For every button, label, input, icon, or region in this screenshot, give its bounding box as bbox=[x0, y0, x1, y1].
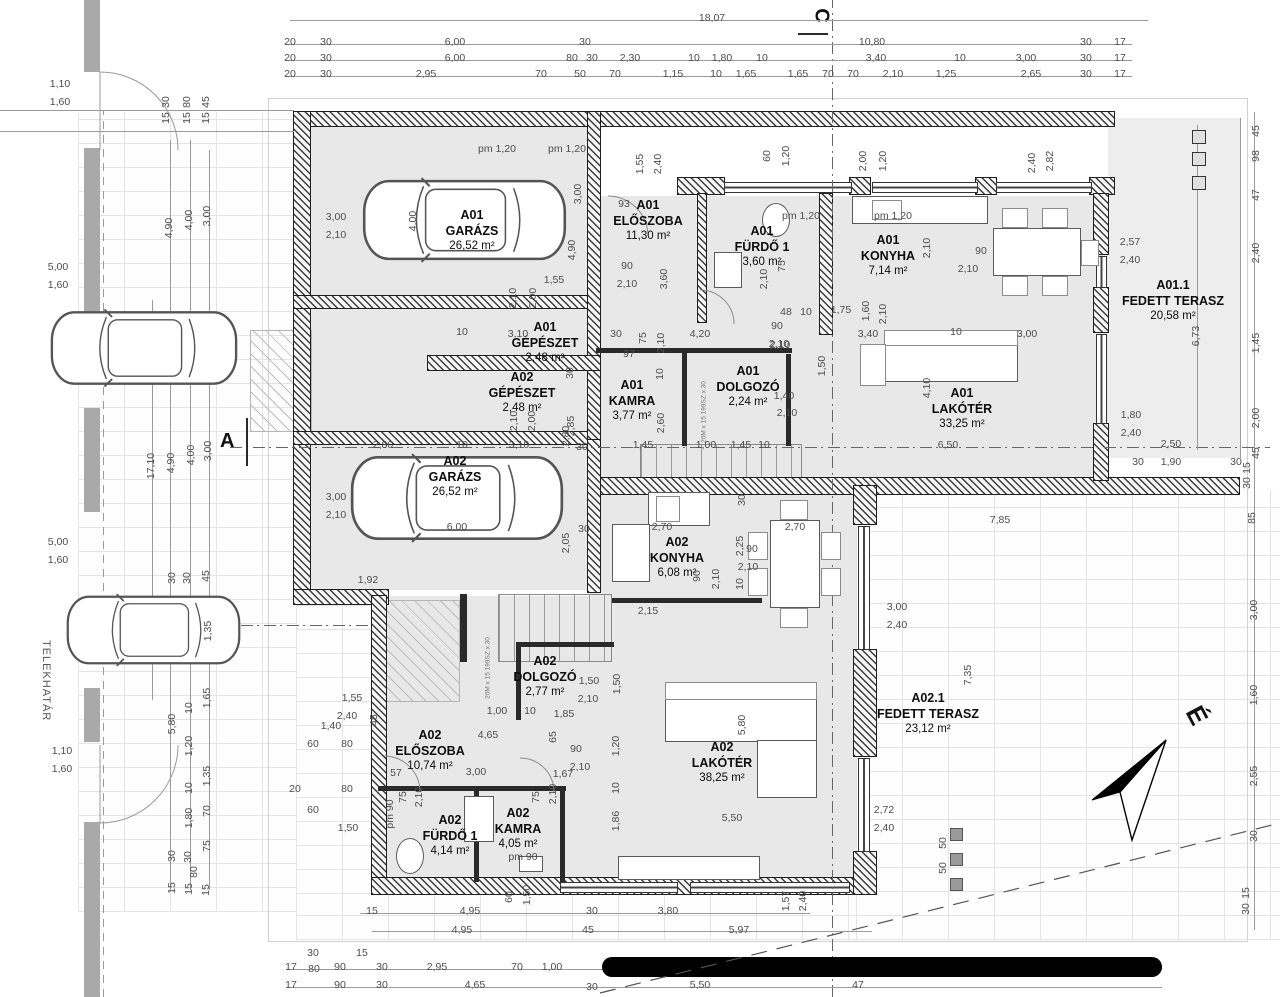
dim-label: 1,50 bbox=[611, 674, 623, 694]
room-area: 4,14 m² bbox=[423, 844, 478, 858]
room-area: 3,77 m² bbox=[609, 409, 656, 423]
dim-label: 5,00 bbox=[48, 261, 68, 273]
axis-line bbox=[80, 625, 380, 626]
dim-label: 1,50 bbox=[579, 675, 599, 687]
chair bbox=[1042, 208, 1068, 228]
dim-label: 2,40 bbox=[874, 822, 894, 834]
dim-label: 3,00 bbox=[1016, 52, 1036, 64]
dim-label: 1,15 bbox=[663, 68, 683, 80]
dim-label: 2,82 bbox=[1044, 151, 1056, 171]
dim-label: 1,10 bbox=[52, 745, 72, 757]
dim-label: 3,80 bbox=[658, 905, 678, 917]
dim-label: 2,10 bbox=[777, 407, 797, 419]
room-label-a02-gepeszet: A02 GÉPÉSZET 2,48 m² bbox=[489, 370, 556, 416]
boundary-wall bbox=[84, 148, 100, 312]
room-label-a021-terasz: A02.1 FEDETT TERASZ 23,12 m² bbox=[877, 691, 979, 737]
dim-label: 15 bbox=[181, 112, 193, 124]
dim-label: 4,00 bbox=[185, 445, 197, 465]
dim-label: 1,45 bbox=[633, 439, 653, 451]
dim-label: 45 bbox=[582, 924, 594, 936]
room-unit: A02 bbox=[692, 740, 752, 756]
dim-label: 1,45 bbox=[1250, 333, 1262, 353]
dim-label: 7,35 bbox=[962, 665, 974, 685]
dim-label: 80 bbox=[188, 866, 200, 878]
dim-label: 60 bbox=[307, 804, 319, 816]
dim-label: 10 bbox=[183, 702, 195, 714]
dim-label: 80 bbox=[341, 783, 353, 795]
dim-label: 30 bbox=[586, 981, 598, 993]
dim-label: 4,10 bbox=[921, 378, 933, 398]
dim-label: 2,95 bbox=[427, 961, 447, 973]
dim-label: 5,97 bbox=[729, 924, 749, 936]
dim-label: 6,00 bbox=[445, 52, 465, 64]
dim-label: 10 bbox=[524, 705, 536, 717]
paver bbox=[950, 828, 963, 841]
dim-label: 17 bbox=[1114, 52, 1126, 64]
room-name: ELŐSZOBA bbox=[395, 744, 464, 760]
dim-label: 4,95 bbox=[452, 924, 472, 936]
dim-label: 60 bbox=[307, 738, 319, 750]
wall bbox=[698, 194, 706, 322]
dim-label: 1,90 bbox=[1161, 456, 1181, 468]
dim-label: 4,00 bbox=[183, 210, 195, 230]
dim-label: 90 bbox=[771, 320, 783, 332]
wall bbox=[854, 486, 876, 524]
dim-label: 1,40 bbox=[774, 390, 794, 402]
dim-line bbox=[286, 76, 1132, 77]
room-label-a01-kamra: A01 KAMRA 3,77 m² bbox=[609, 378, 656, 424]
dim-label: 80 bbox=[566, 52, 578, 64]
window bbox=[996, 182, 1092, 193]
dim-label: 15 bbox=[1240, 887, 1252, 899]
dim-label: 1,92 bbox=[358, 574, 378, 586]
dining-table-a01 bbox=[993, 228, 1081, 276]
room-label-a01-gepeszet: A01 GÉPÉSZET 2,48 m² bbox=[512, 320, 579, 366]
dim-line bbox=[170, 140, 171, 890]
dim-label: 1,60 bbox=[48, 554, 68, 566]
post bbox=[1192, 130, 1206, 144]
dim-label: 1,40 bbox=[321, 720, 341, 732]
dim-label: 30 bbox=[320, 52, 332, 64]
dim-label: 10 bbox=[456, 439, 468, 451]
wall-pier bbox=[1090, 178, 1114, 194]
fence-line bbox=[0, 110, 294, 111]
ramp-a02 bbox=[386, 600, 460, 702]
dim-label: 2,10 bbox=[570, 761, 590, 773]
wall bbox=[588, 440, 600, 592]
dim-line bbox=[286, 987, 1162, 988]
dim-label: 15 bbox=[160, 112, 172, 124]
dim-label: 75 bbox=[530, 791, 542, 803]
room-name: FÜRDŐ 1 bbox=[423, 829, 478, 845]
sideboard-a02 bbox=[618, 856, 760, 880]
partition bbox=[682, 348, 687, 446]
dim-label: 6,50 bbox=[938, 439, 958, 451]
dim-label: 2,10 bbox=[758, 269, 770, 289]
dim-label: 1,55 bbox=[544, 274, 564, 286]
room-label-a02-eloszoba: A02 ELŐSZOBA 10,74 m² bbox=[395, 728, 464, 774]
dim-label: 1,10 bbox=[50, 78, 70, 90]
dim-label: 1,20 bbox=[780, 146, 792, 166]
room-name: DOLGOZÓ bbox=[513, 670, 576, 686]
wall bbox=[854, 852, 876, 894]
chair bbox=[1002, 276, 1028, 296]
dim-label: 17 bbox=[285, 961, 297, 973]
room-unit: A01 bbox=[716, 364, 779, 380]
section-tick-c bbox=[798, 33, 828, 35]
dim-label: 60 bbox=[503, 891, 515, 903]
dim-label: 30 bbox=[1241, 477, 1253, 489]
dim-label: 30 bbox=[182, 851, 194, 863]
dim-label: 10 bbox=[688, 52, 700, 64]
dim-label: 2,40 bbox=[652, 154, 664, 174]
dining-table-a02 bbox=[770, 520, 820, 608]
dim-label: 30 bbox=[1248, 830, 1260, 842]
boundary-line bbox=[103, 110, 104, 997]
wall bbox=[294, 112, 310, 604]
dim-label: 5,80 bbox=[736, 715, 748, 735]
dim-label: 1,00 bbox=[542, 961, 562, 973]
dim-label: 80 bbox=[308, 963, 320, 975]
redaction-bar bbox=[602, 957, 1162, 977]
dim-label: pm 1,20 bbox=[548, 143, 586, 155]
room-area: 2,77 m² bbox=[513, 685, 576, 699]
dim-label: 30 bbox=[736, 494, 748, 506]
dim-label: 5,50 bbox=[690, 979, 710, 991]
dim-label: 15 bbox=[366, 905, 378, 917]
dim-label: 1,65 bbox=[736, 68, 756, 80]
dim-label: 1,57 bbox=[780, 891, 792, 911]
dim-label: 65 bbox=[547, 731, 559, 743]
dim-label: 2,60 bbox=[655, 413, 667, 433]
dim-label: 10 bbox=[950, 326, 962, 338]
chair bbox=[821, 532, 841, 560]
dim-label: 30 bbox=[579, 36, 591, 48]
wall bbox=[294, 432, 592, 444]
dim-label: 80 bbox=[181, 96, 193, 108]
wall bbox=[854, 650, 876, 756]
dim-label: 80 bbox=[341, 738, 353, 750]
dim-label: 30 bbox=[1080, 68, 1092, 80]
room-name: FEDETT TERASZ bbox=[1122, 294, 1224, 310]
dim-label: 1,80 bbox=[712, 52, 732, 64]
dim-label: 1,60 bbox=[1248, 685, 1260, 705]
dim-label: 1,45 bbox=[731, 439, 751, 451]
side-table bbox=[860, 344, 886, 386]
dim-label: 30 bbox=[1080, 52, 1092, 64]
dim-label: 7,85 bbox=[990, 514, 1010, 526]
dim-line bbox=[286, 60, 1132, 61]
dim-label: 1,86 bbox=[610, 811, 622, 831]
dim-label: 48 bbox=[780, 306, 792, 318]
dim-label: 1,35 bbox=[201, 766, 213, 786]
dim-label: 20 bbox=[289, 783, 301, 795]
dim-label: 57 bbox=[390, 767, 402, 779]
dim-label: 2,10 bbox=[877, 304, 889, 324]
room-unit: A01 bbox=[609, 378, 656, 394]
dim-label: 30 bbox=[166, 572, 178, 584]
dim-label: 2,65 bbox=[1021, 68, 1041, 80]
dim-label: 3,00 bbox=[572, 184, 584, 204]
dim-label: 70 bbox=[847, 68, 859, 80]
wall-pier bbox=[678, 178, 724, 194]
boundary-wall bbox=[84, 688, 100, 742]
dim-label: 2,40 bbox=[1121, 427, 1141, 439]
room-name: KONYHA bbox=[861, 249, 915, 265]
room-name: FÜRDŐ 1 bbox=[735, 240, 790, 256]
dim-label: 2,72 bbox=[874, 804, 894, 816]
dim-label: 30 bbox=[610, 328, 622, 340]
dim-label: 2,10 bbox=[507, 288, 519, 308]
dim-label: 50 bbox=[937, 837, 949, 849]
dim-label: 2,10 bbox=[413, 787, 425, 807]
window bbox=[858, 526, 870, 650]
room-label-a02-kamra: A02 KAMRA 4,05 m² bbox=[495, 806, 542, 852]
dim-label: 2,80 bbox=[560, 426, 572, 446]
room-unit: A01 bbox=[932, 386, 992, 402]
dim-label: 10 bbox=[758, 439, 770, 451]
toilet-a02 bbox=[396, 838, 424, 874]
dim-label: 2,40 bbox=[1250, 243, 1262, 263]
dim-label: 17,10 bbox=[145, 453, 157, 479]
dim-label: 3,00 bbox=[1017, 328, 1037, 340]
room-area: 7,14 m² bbox=[861, 264, 915, 278]
dim-label: 1,35 bbox=[202, 621, 214, 641]
partition bbox=[560, 790, 565, 882]
room-unit: A02 bbox=[395, 728, 464, 744]
dim-label: 75 bbox=[776, 260, 788, 272]
dim-label: 15 bbox=[200, 884, 212, 896]
dim-label: 5,80 bbox=[166, 714, 178, 734]
dim-label: 6,00 bbox=[447, 521, 467, 533]
dim-label: 30 bbox=[586, 905, 598, 917]
dim-label: 93 bbox=[618, 198, 630, 210]
dim-label: 30 bbox=[586, 52, 598, 64]
dim-label: 1,60 bbox=[50, 96, 70, 108]
dim-label: 4,20 bbox=[690, 328, 710, 340]
dim-label: 45 bbox=[200, 570, 212, 582]
chair bbox=[1042, 276, 1068, 296]
dim-line bbox=[372, 931, 872, 932]
kitchen-cab-a02 bbox=[612, 524, 650, 582]
dim-label: 17 bbox=[1114, 36, 1126, 48]
chair bbox=[821, 568, 841, 596]
dim-label: 75 bbox=[397, 791, 409, 803]
dim-label: 15 bbox=[1241, 462, 1253, 474]
dim-label: 30 bbox=[1080, 36, 1092, 48]
room-area: 2,48 m² bbox=[489, 401, 556, 415]
room-unit: A02 bbox=[513, 654, 576, 670]
dim-label: 2,40 bbox=[1120, 254, 1140, 266]
dim-label: 30 bbox=[1132, 456, 1144, 468]
room-area: 2,48 m² bbox=[512, 351, 579, 365]
dim-label: 2,10 bbox=[326, 509, 346, 521]
dim-label: 1,20 bbox=[610, 736, 622, 756]
dim-label: 3,00 bbox=[466, 766, 486, 778]
dim-label: 60 bbox=[761, 150, 773, 162]
wall bbox=[372, 596, 386, 894]
dim-label: 4,90 bbox=[163, 218, 175, 238]
dim-label: 1,50 bbox=[338, 822, 358, 834]
dim-label: 1,60 bbox=[860, 301, 872, 321]
dim-label: 17 bbox=[285, 979, 297, 991]
room-area: 11,30 m² bbox=[613, 229, 682, 243]
dim-label: 1,80 bbox=[1121, 409, 1141, 421]
room-name: GÉPÉSZET bbox=[489, 386, 556, 402]
dim-label: 2,05 bbox=[560, 533, 572, 553]
dim-label: 10 bbox=[710, 68, 722, 80]
window bbox=[1096, 334, 1107, 424]
dim-label: 2,80 bbox=[373, 439, 393, 451]
dim-label: 1,20 bbox=[183, 736, 195, 756]
dim-label: 1,00 bbox=[487, 705, 507, 717]
dim-label: 10 bbox=[610, 782, 622, 794]
dim-label: 45 bbox=[1250, 447, 1262, 459]
dim-label: 70 bbox=[511, 961, 523, 973]
dim-label: 2,10 bbox=[326, 229, 346, 241]
dim-label: 17 bbox=[1114, 68, 1126, 80]
dim-label: 3,10 bbox=[508, 328, 528, 340]
dim-label: 30 bbox=[578, 523, 590, 535]
dim-label: 90 bbox=[334, 979, 346, 991]
terrace-edge bbox=[1240, 118, 1241, 458]
dim-label: 70 bbox=[201, 805, 213, 817]
dim-label: 1,50 bbox=[521, 885, 533, 905]
dim-label: 4,65 bbox=[465, 979, 485, 991]
room-label-a01-dolgozo: A01 DOLGOZÓ 2,24 m² bbox=[716, 364, 779, 410]
chair bbox=[780, 500, 808, 520]
room-label-a01-konyha: A01 KONYHA 7,14 m² bbox=[861, 233, 915, 279]
boundary-wall bbox=[84, 408, 100, 512]
dim-label: 2,70 bbox=[652, 521, 672, 533]
wall-pier bbox=[850, 178, 870, 194]
dim-label: 2,00 bbox=[857, 151, 869, 171]
dim-label: 2,10 bbox=[710, 569, 722, 589]
dim-label: 4,95 bbox=[460, 905, 480, 917]
room-label-a01-garazs: A01 GARÁZS 26,52 m² bbox=[446, 208, 499, 254]
dim-label: 30 bbox=[376, 979, 388, 991]
room-name: KONYHA bbox=[650, 551, 704, 567]
dim-label: 1,65 bbox=[788, 68, 808, 80]
dim-label: 30 bbox=[307, 947, 319, 959]
room-area: 20,58 m² bbox=[1122, 309, 1224, 323]
dim-label: 45 bbox=[1250, 125, 1262, 137]
dim-label: 2,55 bbox=[1248, 766, 1260, 786]
dim-label: 2,10 bbox=[770, 339, 790, 351]
room-unit: A02 bbox=[489, 370, 556, 386]
dim-label: pm 90 bbox=[384, 799, 396, 828]
dim-label: 85 bbox=[1246, 512, 1258, 524]
dim-label: 75 bbox=[637, 332, 649, 344]
post bbox=[1192, 152, 1206, 166]
room-name: FEDETT TERASZ bbox=[877, 707, 979, 723]
room-name: GARÁZS bbox=[446, 224, 499, 240]
chair bbox=[1081, 240, 1099, 266]
dim-label: 1,65 bbox=[201, 688, 213, 708]
dim-label: 2,10 bbox=[578, 693, 598, 705]
dim-label: 4,65 bbox=[478, 729, 498, 741]
dim-label: 47 bbox=[852, 979, 864, 991]
dim-label: 30 bbox=[320, 36, 332, 48]
dim-label: 30 bbox=[166, 850, 178, 862]
dim-label: 98 bbox=[1250, 150, 1262, 162]
dim-label: 30 bbox=[181, 572, 193, 584]
chair bbox=[1002, 208, 1028, 228]
dim-label: 30 bbox=[320, 68, 332, 80]
dim-label: 2,40 bbox=[887, 619, 907, 631]
dim-label: 3,00 bbox=[326, 211, 346, 223]
room-label-a02-lakoter: A02 LAKÓTÉR 38,25 m² bbox=[692, 740, 752, 786]
dim-label: 15 bbox=[183, 883, 195, 895]
room-area: 4,05 m² bbox=[495, 837, 542, 851]
wall bbox=[588, 112, 600, 494]
dim-label: 2,70 bbox=[785, 521, 805, 533]
dim-label: 2,10 bbox=[655, 333, 667, 353]
room-name: ELŐSZOBA bbox=[613, 214, 682, 230]
partition bbox=[516, 642, 614, 647]
room-name: KAMRA bbox=[609, 394, 656, 410]
boundary-wall bbox=[84, 0, 100, 72]
room-unit: A01 bbox=[446, 208, 499, 224]
wall bbox=[1094, 288, 1108, 332]
dim-label: 1,50 bbox=[816, 356, 828, 376]
dim-label: 30 bbox=[376, 961, 388, 973]
chair bbox=[780, 608, 808, 628]
room-area: 2,24 m² bbox=[716, 395, 779, 409]
window bbox=[690, 882, 850, 893]
dim-label: pm 1,20 bbox=[874, 210, 912, 222]
dim-label: 90 bbox=[746, 543, 758, 555]
dim-line bbox=[190, 140, 191, 890]
dim-label: 2,00 bbox=[526, 411, 538, 431]
dim-label: 90 bbox=[570, 743, 582, 755]
dim-label: 2,10 bbox=[617, 278, 637, 290]
dim-label: 90 bbox=[691, 570, 703, 582]
dim-label: pm 90 bbox=[508, 851, 537, 863]
dim-label: 1,60 bbox=[48, 279, 68, 291]
room-name: DOLGOZÓ bbox=[716, 380, 779, 396]
wall bbox=[1094, 424, 1108, 480]
dim-label: 4,90 bbox=[165, 453, 177, 473]
dim-label: 1,20 bbox=[877, 151, 889, 171]
dim-label: 3,40 bbox=[866, 52, 886, 64]
dim-label: 2,10 bbox=[547, 784, 559, 804]
paver bbox=[950, 853, 963, 866]
dim-label: 10 bbox=[800, 306, 812, 318]
room-unit: A02 bbox=[495, 806, 542, 822]
partition bbox=[612, 598, 762, 603]
dim-label: 15 bbox=[356, 947, 368, 959]
dim-label: 70 bbox=[535, 68, 547, 80]
dim-label: 30 bbox=[576, 441, 588, 453]
sofa-chaise bbox=[757, 740, 817, 798]
dim-label: 20 bbox=[284, 52, 296, 64]
sink-a02 bbox=[656, 496, 680, 522]
dim-label: 1,55 bbox=[634, 154, 646, 174]
dim-label: 3,00 bbox=[326, 491, 346, 503]
room-unit: A02 bbox=[423, 813, 478, 829]
room-area: 26,52 m² bbox=[446, 239, 499, 253]
dim-label: 2,10 bbox=[883, 68, 903, 80]
dim-label: 2,40 bbox=[797, 891, 809, 911]
dim-label: pm 1,20 bbox=[782, 210, 820, 222]
sofa-back bbox=[665, 682, 817, 700]
dim-label: 30 bbox=[564, 367, 576, 379]
dim-label: 6,00 bbox=[445, 36, 465, 48]
dim-label: 70 bbox=[609, 68, 621, 80]
dim-label: 2,10 bbox=[958, 263, 978, 275]
window bbox=[872, 182, 978, 193]
